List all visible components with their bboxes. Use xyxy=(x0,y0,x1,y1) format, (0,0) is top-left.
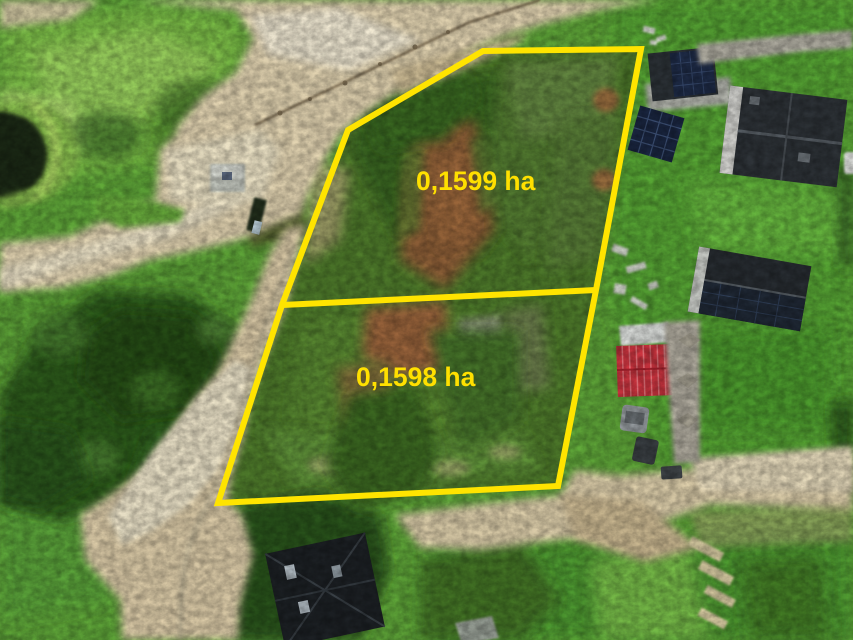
svg-text:0,1599 ha: 0,1599 ha xyxy=(416,166,536,196)
svg-text:0,1598 ha: 0,1598 ha xyxy=(356,362,476,392)
